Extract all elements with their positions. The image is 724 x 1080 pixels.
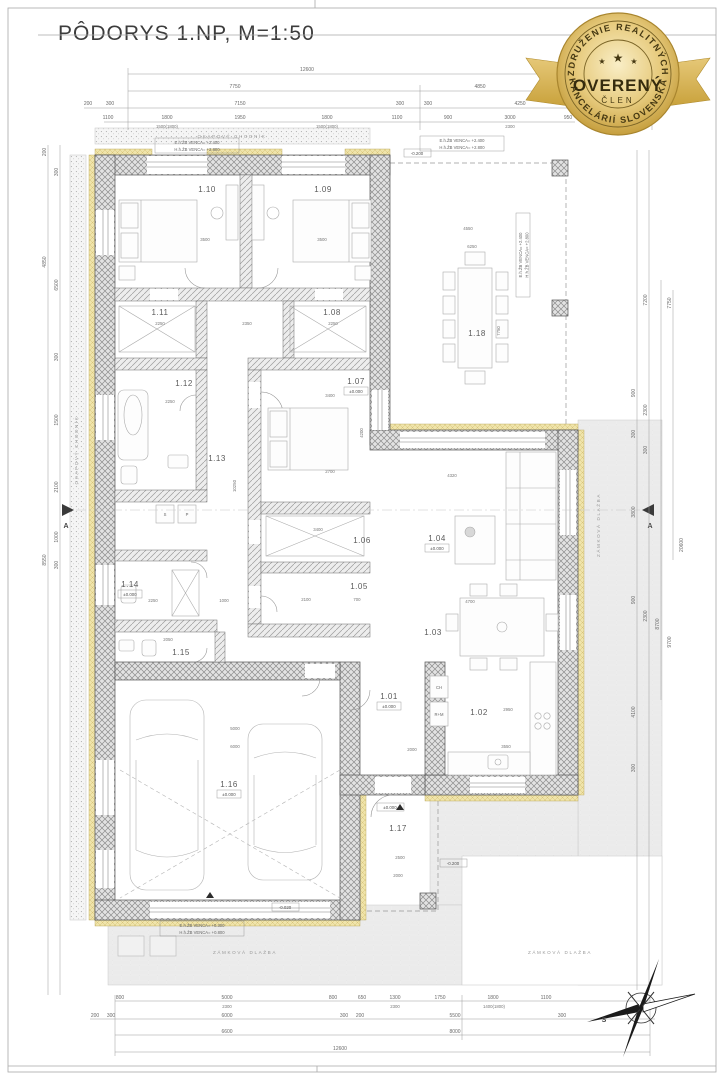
dim-label: 4100 bbox=[631, 706, 637, 717]
dim-label: 1000 bbox=[219, 598, 229, 603]
dim-label: 2950 bbox=[503, 707, 513, 712]
appliance-labels: CH R+M S P bbox=[164, 512, 444, 717]
dim-label: 300 bbox=[424, 101, 433, 107]
dim-label: 8000 bbox=[449, 1029, 460, 1035]
garage-door-opening bbox=[150, 902, 330, 918]
dim-label: 20600 bbox=[679, 538, 685, 552]
dim-label: 1100 bbox=[541, 995, 552, 1001]
dim-label: 300 bbox=[107, 1013, 116, 1019]
dim-label: 1500(1800) bbox=[316, 124, 339, 129]
drawing-sheet: PÔDORYS 1.NP, M=1:50 bbox=[0, 0, 724, 1080]
dim-label: 6000 bbox=[221, 1013, 232, 1019]
dim-label: 2000 bbox=[407, 747, 417, 752]
dim-label: 900 bbox=[444, 115, 453, 121]
dim-label: 1400(1800) bbox=[483, 1004, 506, 1009]
dim-label: 1750 bbox=[434, 995, 445, 1001]
ring-beam-note: H.h.ŽB VENCA= +0.800 bbox=[179, 930, 225, 935]
dim-label: 7150 bbox=[234, 101, 245, 107]
floor-plan-drawing: ZÁMKOVÁ DLAŽBA ZÁMKOVÁ DLAŽBA ZÁMKOVÁ DL… bbox=[0, 0, 724, 1080]
dim-label: 7750 bbox=[229, 84, 240, 90]
badge-subtitle: ČLEN bbox=[601, 96, 634, 105]
room-label-112: 1.12 bbox=[175, 379, 193, 388]
dim-label: 800 bbox=[116, 995, 125, 1001]
dim-label: 5000 bbox=[230, 726, 240, 731]
level-value: -0.200 bbox=[411, 151, 424, 156]
ring-beam-note: H.h.ŽB VENCA= +2.800 bbox=[439, 145, 485, 150]
ring-beam-note: H.h.ŽB VENCA= +2.800 bbox=[525, 232, 530, 278]
dim-label: 7750 bbox=[496, 326, 501, 336]
room-label-110: 1.10 bbox=[198, 185, 216, 194]
room-label-109: 1.09 bbox=[314, 185, 332, 194]
room-label-103: 1.03 bbox=[424, 628, 442, 637]
dim-label: 2050 bbox=[163, 637, 173, 642]
level-value: -0.020 bbox=[279, 905, 292, 910]
dim-label: 6000 bbox=[230, 744, 240, 749]
dim-label: 4550 bbox=[463, 226, 473, 231]
level-value: ±0.000 bbox=[383, 805, 397, 810]
dimensions-left: 200 300 4850 6500 300 1500 2100 8550 100… bbox=[42, 148, 60, 570]
dim-label: 3800 bbox=[631, 506, 637, 517]
level-value: ±0.000 bbox=[222, 792, 236, 797]
dim-label: 5000 bbox=[221, 995, 232, 1001]
level-value: ±0.000 bbox=[382, 704, 396, 709]
room-label-118: 1.18 bbox=[468, 329, 486, 338]
dim-label: 2250 bbox=[155, 321, 165, 326]
dim-label: 4200 bbox=[359, 428, 364, 438]
level-value: ±0.000 bbox=[430, 546, 444, 551]
dim-label: 300 bbox=[106, 101, 115, 107]
dim-label: 2250 bbox=[165, 399, 175, 404]
room-label-107: 1.07 bbox=[347, 377, 365, 386]
dim-label: 9700 bbox=[667, 636, 673, 647]
dim-label: 2250 bbox=[328, 321, 338, 326]
room-label-105: 1.05 bbox=[350, 582, 368, 591]
ring-beam-note: E.h.ŽB VENCA= +2.400 bbox=[440, 138, 486, 143]
dim-label: 700 bbox=[353, 597, 361, 602]
paving-label: ZÁMKOVÁ DLAŽBA bbox=[594, 493, 601, 557]
entry-arrow bbox=[396, 804, 404, 810]
dim-label: 6250 bbox=[467, 244, 477, 249]
dim-label: 3500 bbox=[200, 237, 210, 242]
dim-label: 12600 bbox=[333, 1046, 347, 1052]
dim-label: 200 bbox=[42, 148, 48, 157]
level-value: ±0.000 bbox=[123, 592, 137, 597]
dim-label: 300 bbox=[54, 561, 60, 570]
north-label: S bbox=[602, 1017, 607, 1024]
star-icon: ★ bbox=[613, 51, 624, 65]
room-label-101: 1.01 bbox=[380, 692, 398, 701]
dim-label: 200 bbox=[356, 1013, 365, 1019]
dim-label: 300 bbox=[558, 1013, 567, 1019]
dim-label: 8550 bbox=[42, 554, 48, 565]
dim-label: 2300 bbox=[505, 124, 515, 129]
dim-label: 200 bbox=[84, 101, 93, 107]
dim-label: 3500 bbox=[317, 237, 327, 242]
dim-label: 2300 bbox=[390, 1004, 400, 1009]
level-value: -0.200 bbox=[447, 861, 460, 866]
dim-label: 3550 bbox=[501, 744, 511, 749]
paving-label: ZÁMKOVÁ DLAŽBA bbox=[213, 948, 277, 955]
dim-label: 200 bbox=[91, 1013, 100, 1019]
dim-label: 1950 bbox=[234, 115, 245, 121]
room-label-113: 1.13 bbox=[208, 454, 226, 463]
dim-label: 1300 bbox=[389, 995, 400, 1001]
dim-label: 6600 bbox=[221, 1029, 232, 1035]
dim-label: 7200 bbox=[643, 294, 649, 305]
dim-label: 800 bbox=[329, 995, 338, 1001]
dim-label: 4850 bbox=[42, 256, 48, 267]
dim-label: 4320 bbox=[447, 473, 457, 478]
walkway-label: OKAPOVÝ CHODNÍK bbox=[73, 416, 79, 485]
dim-label: 7750 bbox=[667, 297, 673, 308]
dim-label: 4850 bbox=[474, 84, 485, 90]
washer-label: S bbox=[164, 512, 167, 517]
dim-label: 3400 bbox=[325, 393, 335, 398]
dim-label: 300 bbox=[54, 168, 60, 177]
dim-label: 300 bbox=[340, 1013, 349, 1019]
ring-beam-note: H.h.ŽB VENCA= +2.800 bbox=[174, 147, 220, 152]
dim-label: 1100 bbox=[103, 115, 114, 121]
room-label-104: 1.04 bbox=[428, 534, 446, 543]
dim-label: 2350 bbox=[242, 321, 252, 326]
dim-label: 8700 bbox=[655, 618, 661, 629]
dim-label: 12600 bbox=[300, 67, 314, 73]
room-label-102: 1.02 bbox=[470, 708, 488, 717]
dim-label: 4700 bbox=[465, 599, 475, 604]
dim-label: 2100 bbox=[54, 481, 60, 492]
dim-label: 2250 bbox=[148, 598, 158, 603]
dim-label: 300 bbox=[631, 764, 637, 773]
room-label-116: 1.16 bbox=[220, 780, 238, 789]
dim-label: 3400 bbox=[313, 527, 323, 532]
ring-beam-note: E.h.ŽB VENCA= +0.300 bbox=[180, 923, 226, 928]
dim-label: 300 bbox=[54, 353, 60, 362]
dim-label: 300 bbox=[643, 446, 649, 455]
dim-label: 3000 bbox=[504, 115, 515, 121]
dim-label: 1500(1800) bbox=[156, 124, 179, 129]
dim-label: 650 bbox=[358, 995, 367, 1001]
ring-beam-note: E.h.ŽB VENCA= +2.400 bbox=[175, 140, 221, 145]
star-icon: ★ bbox=[630, 57, 637, 66]
dim-label: 2300 bbox=[643, 404, 649, 415]
entry-arrow bbox=[206, 892, 214, 898]
dim-label: 900 bbox=[631, 389, 637, 398]
dim-label: 2000 bbox=[393, 873, 403, 878]
dim-label: 1000 bbox=[54, 531, 60, 542]
room-label-106: 1.06 bbox=[353, 536, 371, 545]
dimensions-bottom: 800 5000 800 650 1300 1750 1800 1100 230… bbox=[91, 995, 567, 1052]
level-value: ±0.000 bbox=[349, 389, 363, 394]
dim-label: 1800 bbox=[321, 115, 332, 121]
dim-label: 300 bbox=[396, 101, 405, 107]
dim-label: 2300 bbox=[222, 1004, 232, 1009]
room-label-114: 1.14 bbox=[121, 580, 139, 589]
dim-label: 2100 bbox=[301, 597, 311, 602]
pantry-label: R+M bbox=[435, 712, 444, 717]
dim-label: 5500 bbox=[449, 1013, 460, 1019]
room-label-111: 1.11 bbox=[152, 308, 169, 317]
dim-label: 6500 bbox=[54, 279, 60, 290]
dim-label: 1800 bbox=[487, 995, 498, 1001]
section-label: A bbox=[63, 523, 68, 530]
dim-label: 1500 bbox=[54, 414, 60, 425]
certification-badge: ZDRUŽENIE REALITNÝCH KANCELÁRIÍ SLOVENSK… bbox=[518, 2, 718, 152]
dim-label: 1800 bbox=[161, 115, 172, 121]
star-icon: ★ bbox=[598, 57, 605, 66]
dryer-label: P bbox=[186, 512, 189, 517]
dim-label: 2300 bbox=[643, 610, 649, 621]
dim-label: 300 bbox=[631, 430, 637, 439]
dim-label: 10250 bbox=[232, 479, 237, 492]
dim-label: 900 bbox=[631, 596, 637, 605]
badge-title: OVERENÝ bbox=[573, 76, 663, 95]
fridge-label: CH bbox=[436, 685, 442, 690]
ring-beam-note: E.h.ŽB VENCA= +2.400 bbox=[518, 232, 523, 278]
dim-label: 1100 bbox=[392, 115, 403, 121]
section-label: A bbox=[647, 523, 652, 530]
dim-label: 2700 bbox=[325, 469, 335, 474]
dim-label: 2500 bbox=[395, 855, 405, 860]
paving-label: ZÁMKOVÁ DLAŽBA bbox=[528, 948, 592, 955]
room-label-108: 1.08 bbox=[323, 308, 341, 317]
room-label-115: 1.15 bbox=[172, 648, 190, 657]
room-label-117: 1.17 bbox=[389, 824, 407, 833]
